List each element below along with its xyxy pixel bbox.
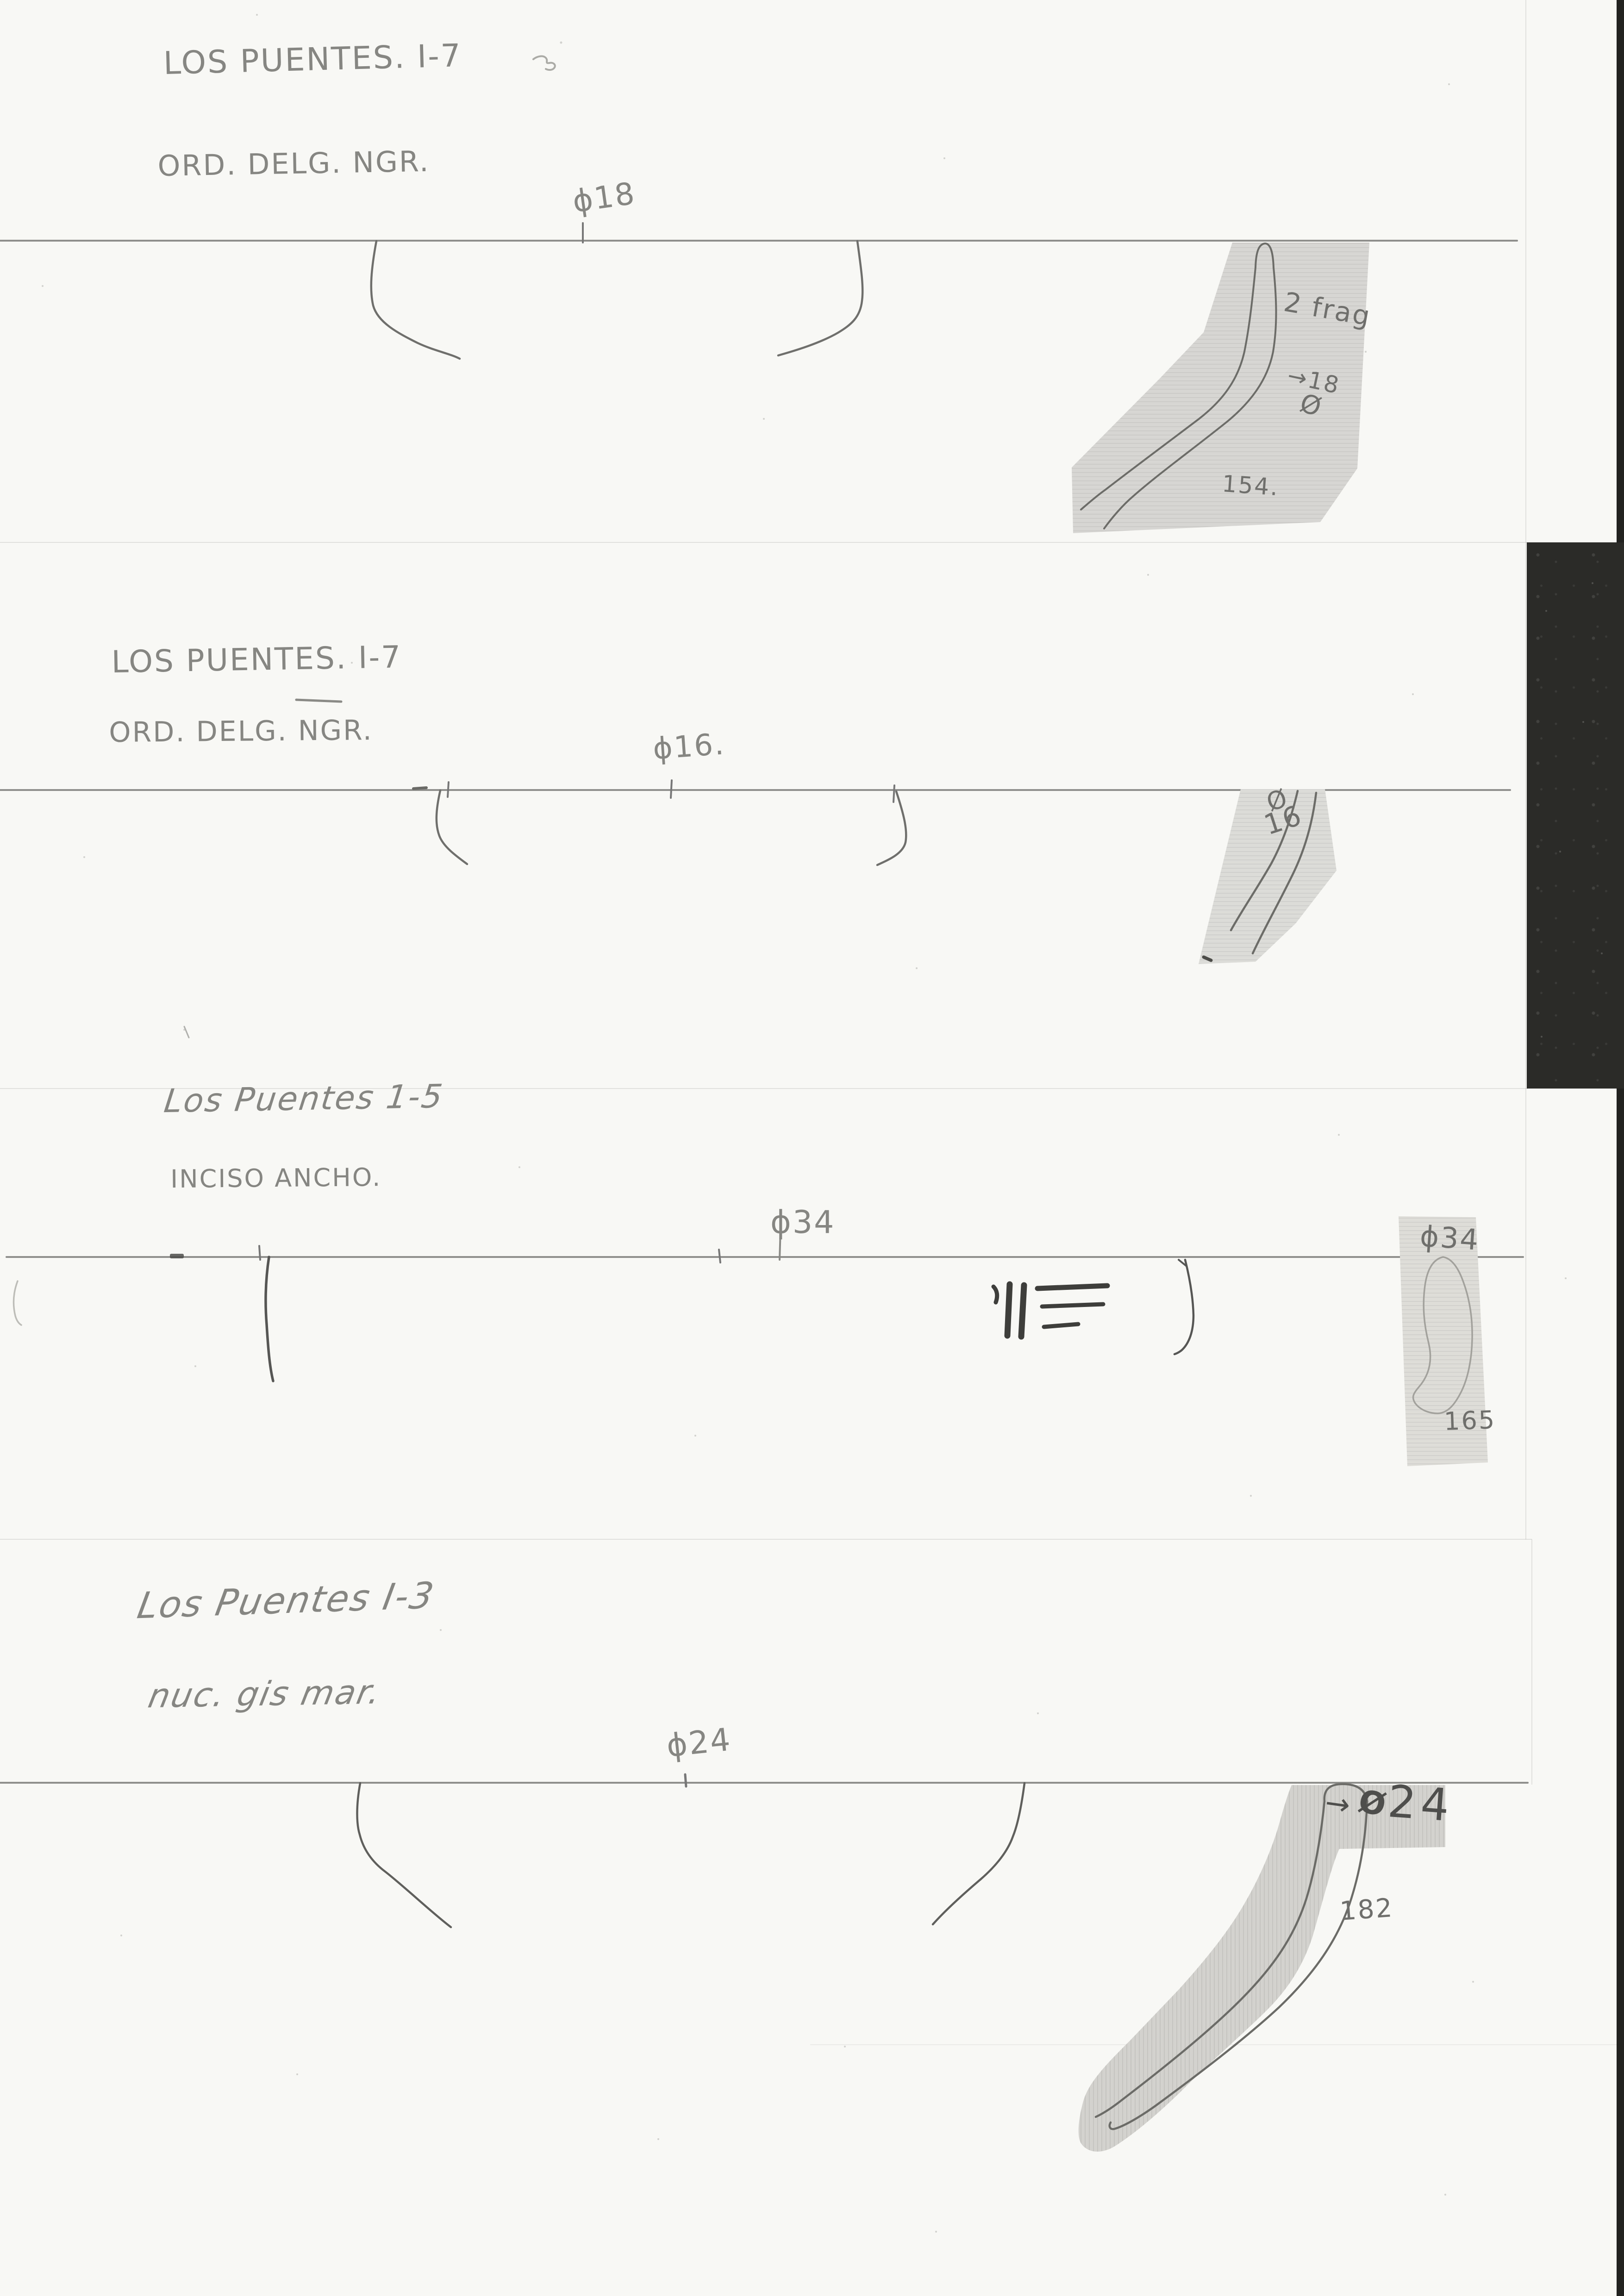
center-tick-4 — [685, 1774, 686, 1786]
vessel-profile-left-1 — [371, 241, 460, 359]
site-label-3: Los Puentes 1-5 — [162, 1077, 446, 1120]
tick-left-3 — [719, 1250, 720, 1263]
ware-label-3: INCISO ANCHO. — [170, 1163, 382, 1194]
rim-diameter-label-2: ϕ16. — [652, 727, 726, 766]
sherd-note-arrow-4: → — [1323, 1786, 1354, 1823]
section-4-drawing — [0, 1774, 1528, 2152]
edge-profile-faint-3 — [14, 1281, 21, 1325]
graphite-smudge-on-line-3 — [170, 1254, 184, 1258]
sherd-cutout-4-texture — [1079, 1785, 1445, 2152]
ware-label-1: ORD. DELG. NGR. — [157, 144, 430, 183]
site-label-1: LOS PUENTES. I-7 — [163, 37, 462, 82]
incision-vertical-1 — [1007, 1284, 1010, 1336]
incision-horizontal-2 — [1042, 1304, 1103, 1307]
rim-diameter-label-3: ϕ34 — [770, 1204, 835, 1241]
title-underline-2 — [296, 700, 341, 702]
dash-mark-2 — [413, 788, 426, 789]
pencil-smudge — [533, 56, 555, 70]
scanner-band-noise — [1541, 582, 1603, 1038]
sherd-note-inventory-1: 154. — [1221, 470, 1280, 501]
site-label-2: LOS PUENTES. I-7 — [111, 639, 402, 680]
scanned-document-page: LOS PUENTES. I-7 ORD. DELG. NGR. ϕ18 2 f… — [0, 0, 1624, 2296]
vessel-profile-right-3 — [1174, 1260, 1193, 1354]
pencil-drawings-layer — [0, 0, 1624, 2296]
sherd-note-diameter-value-4: 24 — [1386, 1775, 1455, 1832]
incision-comma — [993, 1287, 997, 1302]
ware-label-2: ORD. DELG. NGR. — [109, 714, 373, 749]
tick-above-line-3 — [259, 1246, 260, 1260]
center-tick-2 — [671, 780, 672, 798]
tick-left-2 — [448, 782, 449, 797]
rim-diameter-label-4: ϕ24 — [665, 1721, 733, 1764]
sherd-note-inventory-3: 165 — [1443, 1405, 1496, 1436]
vessel-profile-right-4 — [933, 1783, 1024, 1924]
vessel-profile-left-4 — [357, 1783, 451, 1927]
ware-label-4: nuc. gis mar. — [145, 1672, 385, 1715]
paper-strip-seams — [0, 0, 1618, 2045]
vessel-profile-right-1 — [778, 241, 862, 355]
incision-horizontal-3 — [1044, 1324, 1078, 1327]
vessel-profile-left-2 — [437, 790, 467, 864]
incision-horizontal-1 — [1037, 1286, 1107, 1288]
sherd-note-inventory-4: 182 — [1339, 1893, 1394, 1927]
sherd-note-diameter-3: ϕ34 — [1419, 1219, 1481, 1257]
tick-right-2 — [893, 785, 894, 802]
incision-vertical-2 — [1021, 1285, 1024, 1337]
incision-marks-3 — [993, 1284, 1107, 1337]
vessel-profile-left-3 — [266, 1257, 273, 1381]
stray-mark-3 — [184, 1027, 189, 1038]
vessel-profile-right-2 — [877, 791, 906, 865]
